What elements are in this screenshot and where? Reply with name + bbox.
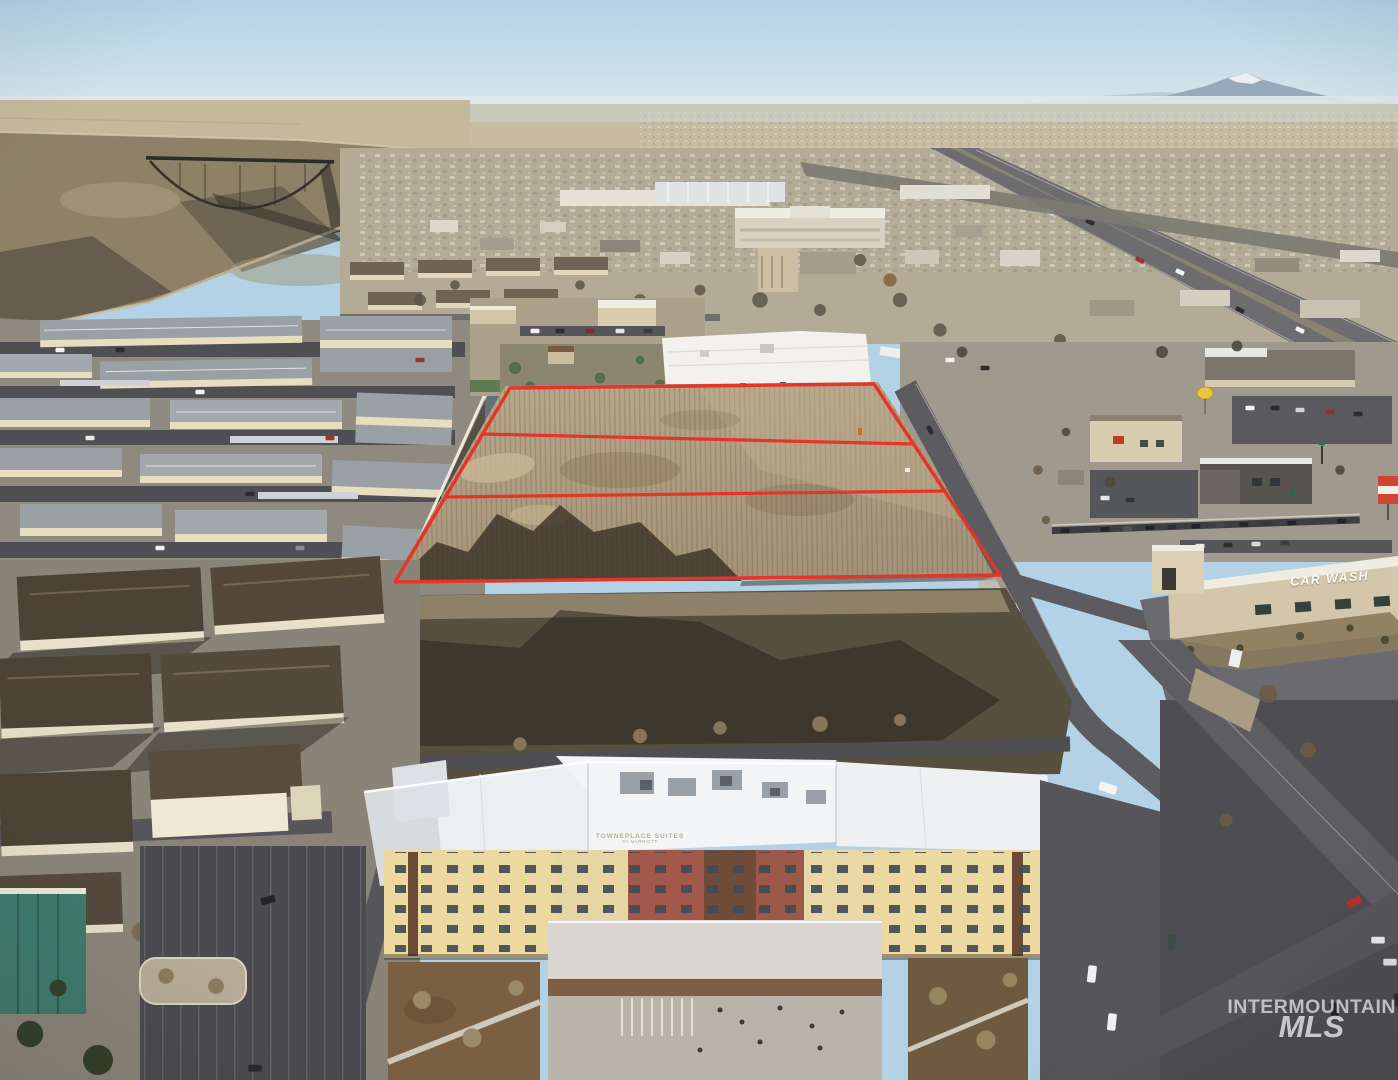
hotel-sign-subtext: BY MARRIOTT xyxy=(588,840,692,845)
hotel-sign: TOWNEPLACE SUITES BY MARRIOTT xyxy=(588,833,692,845)
aerial-photo-scene xyxy=(0,0,1398,1080)
vignette xyxy=(0,0,1398,1080)
watermark-line2: MLS xyxy=(1279,1011,1344,1042)
aerial-photo: TOWNEPLACE SUITES BY MARRIOTT CAR WASH I… xyxy=(0,0,1398,1080)
